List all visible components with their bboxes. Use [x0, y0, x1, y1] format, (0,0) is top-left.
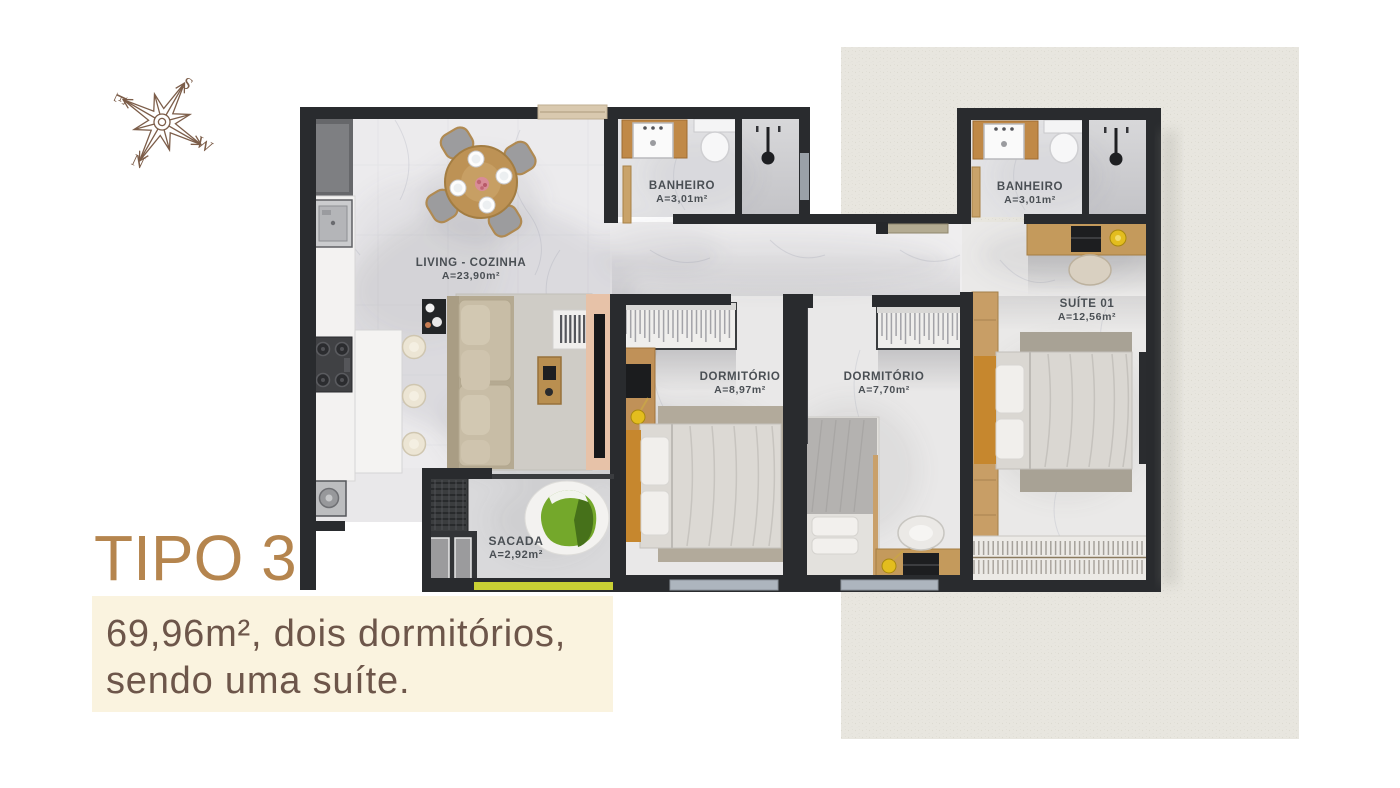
svg-text:DORMITÓRIO: DORMITÓRIO	[700, 370, 781, 383]
svg-text:BANHEIRO: BANHEIRO	[649, 180, 715, 192]
svg-text:N: N	[129, 150, 148, 172]
svg-text:A=3,01m²: A=3,01m²	[656, 193, 708, 205]
svg-text:A=2,92m²: A=2,92m²	[489, 549, 543, 561]
svg-text:A=8,97m²: A=8,97m²	[714, 384, 766, 396]
svg-text:A=3,01m²: A=3,01m²	[1004, 194, 1056, 206]
svg-text:A=7,70m²: A=7,70m²	[858, 384, 910, 396]
svg-text:LIVING - COZINHA: LIVING - COZINHA	[416, 257, 527, 269]
svg-text:E: E	[110, 90, 132, 107]
svg-text:SUÍTE 01: SUÍTE 01	[1060, 297, 1115, 310]
svg-text:sendo uma suíte.: sendo uma suíte.	[106, 660, 410, 702]
svg-text:TIPO 3: TIPO 3	[94, 522, 297, 594]
svg-text:69,96m², dois dormitórios,: 69,96m², dois dormitórios,	[106, 613, 566, 655]
svg-text:DORMITÓRIO: DORMITÓRIO	[844, 370, 925, 383]
svg-text:A=12,56m²: A=12,56m²	[1058, 311, 1116, 323]
svg-text:SACADA: SACADA	[489, 534, 544, 548]
svg-text:BANHEIRO: BANHEIRO	[997, 181, 1063, 193]
svg-text:A=23,90m²: A=23,90m²	[442, 270, 500, 282]
